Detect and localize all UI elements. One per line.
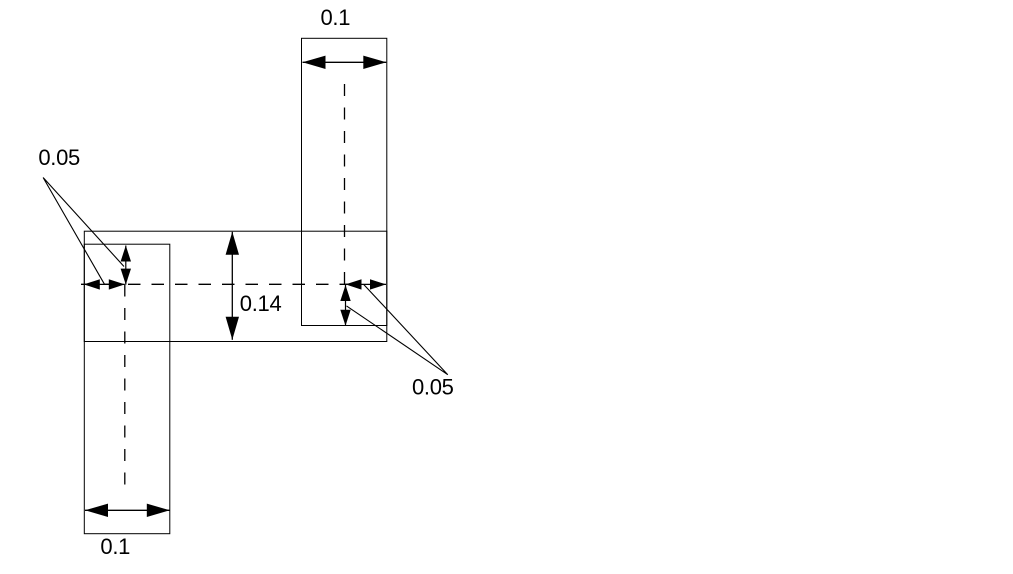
- svg-text:0.05: 0.05: [38, 145, 80, 170]
- svg-text:0.1: 0.1: [321, 5, 351, 30]
- svg-text:0.05: 0.05: [412, 374, 454, 399]
- svg-text:0.1: 0.1: [100, 534, 130, 559]
- svg-text:0.14: 0.14: [240, 291, 282, 316]
